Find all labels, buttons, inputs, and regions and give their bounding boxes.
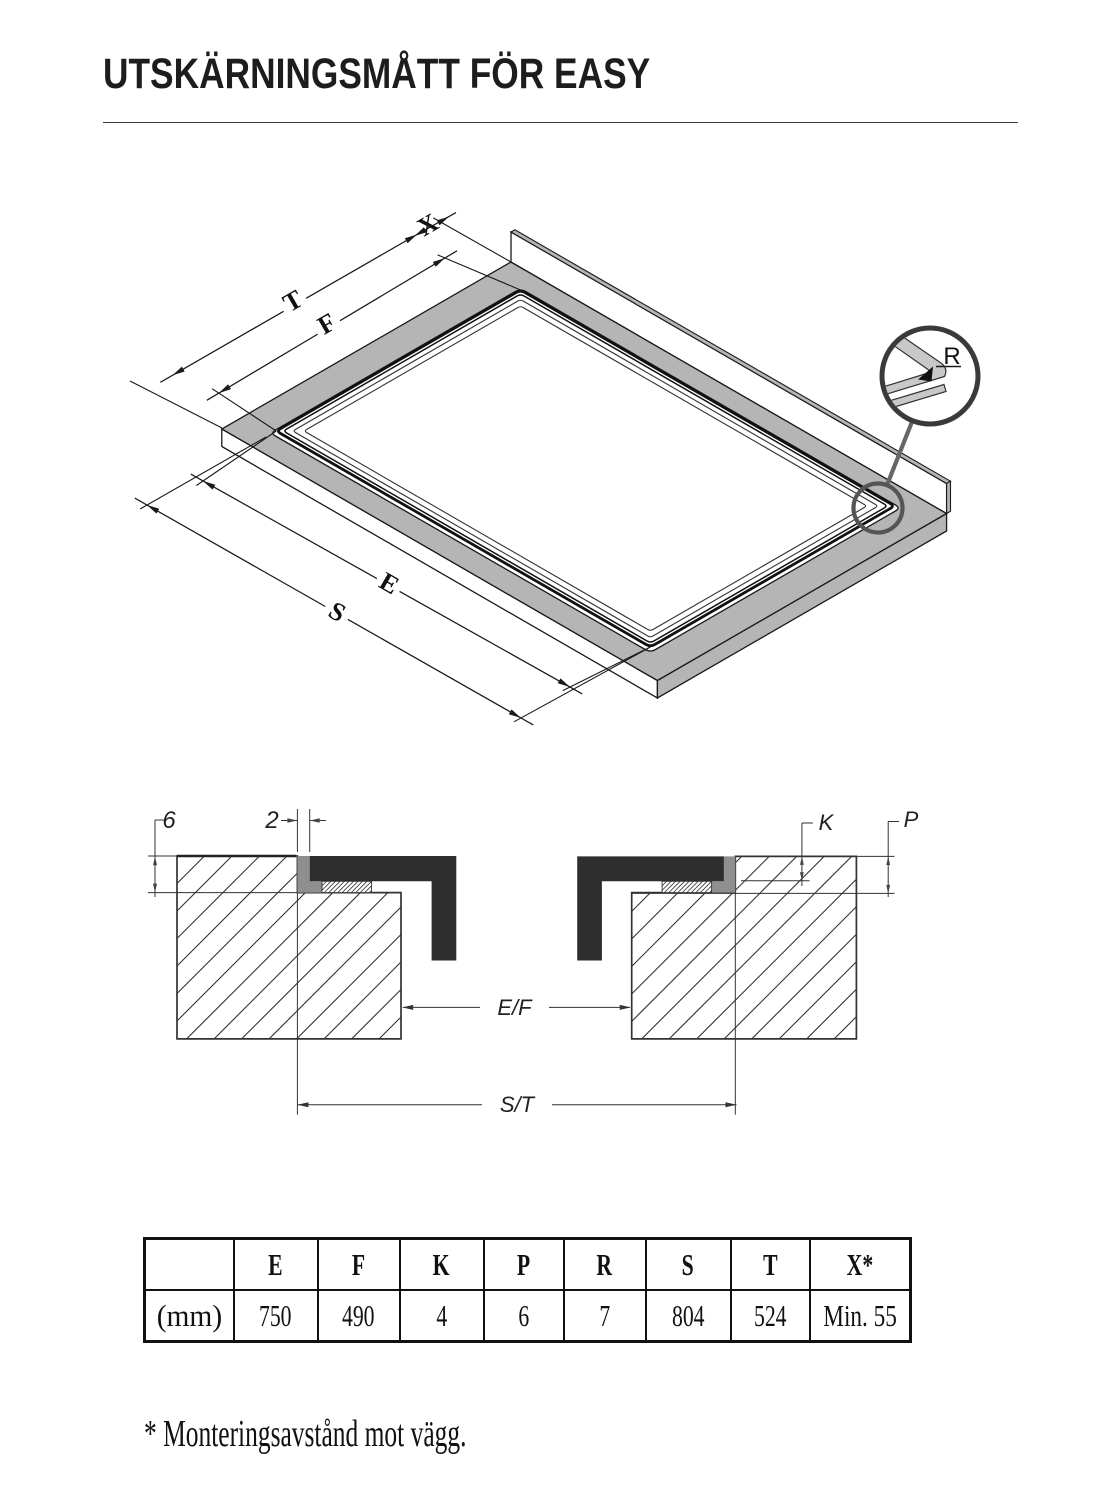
svg-text:6: 6	[162, 807, 176, 834]
svg-text:S: S	[324, 596, 351, 628]
svg-text:P: P	[904, 807, 919, 832]
svg-text:X: X	[412, 207, 443, 242]
svg-text:R: R	[943, 343, 960, 370]
svg-text:E/F: E/F	[497, 995, 533, 1020]
svg-text:T: T	[278, 284, 308, 318]
svg-text:2: 2	[264, 807, 278, 834]
svg-text:F: F	[313, 307, 341, 340]
svg-text:K: K	[819, 810, 835, 835]
svg-text:S/T: S/T	[500, 1092, 536, 1117]
svg-text:E: E	[375, 566, 405, 600]
